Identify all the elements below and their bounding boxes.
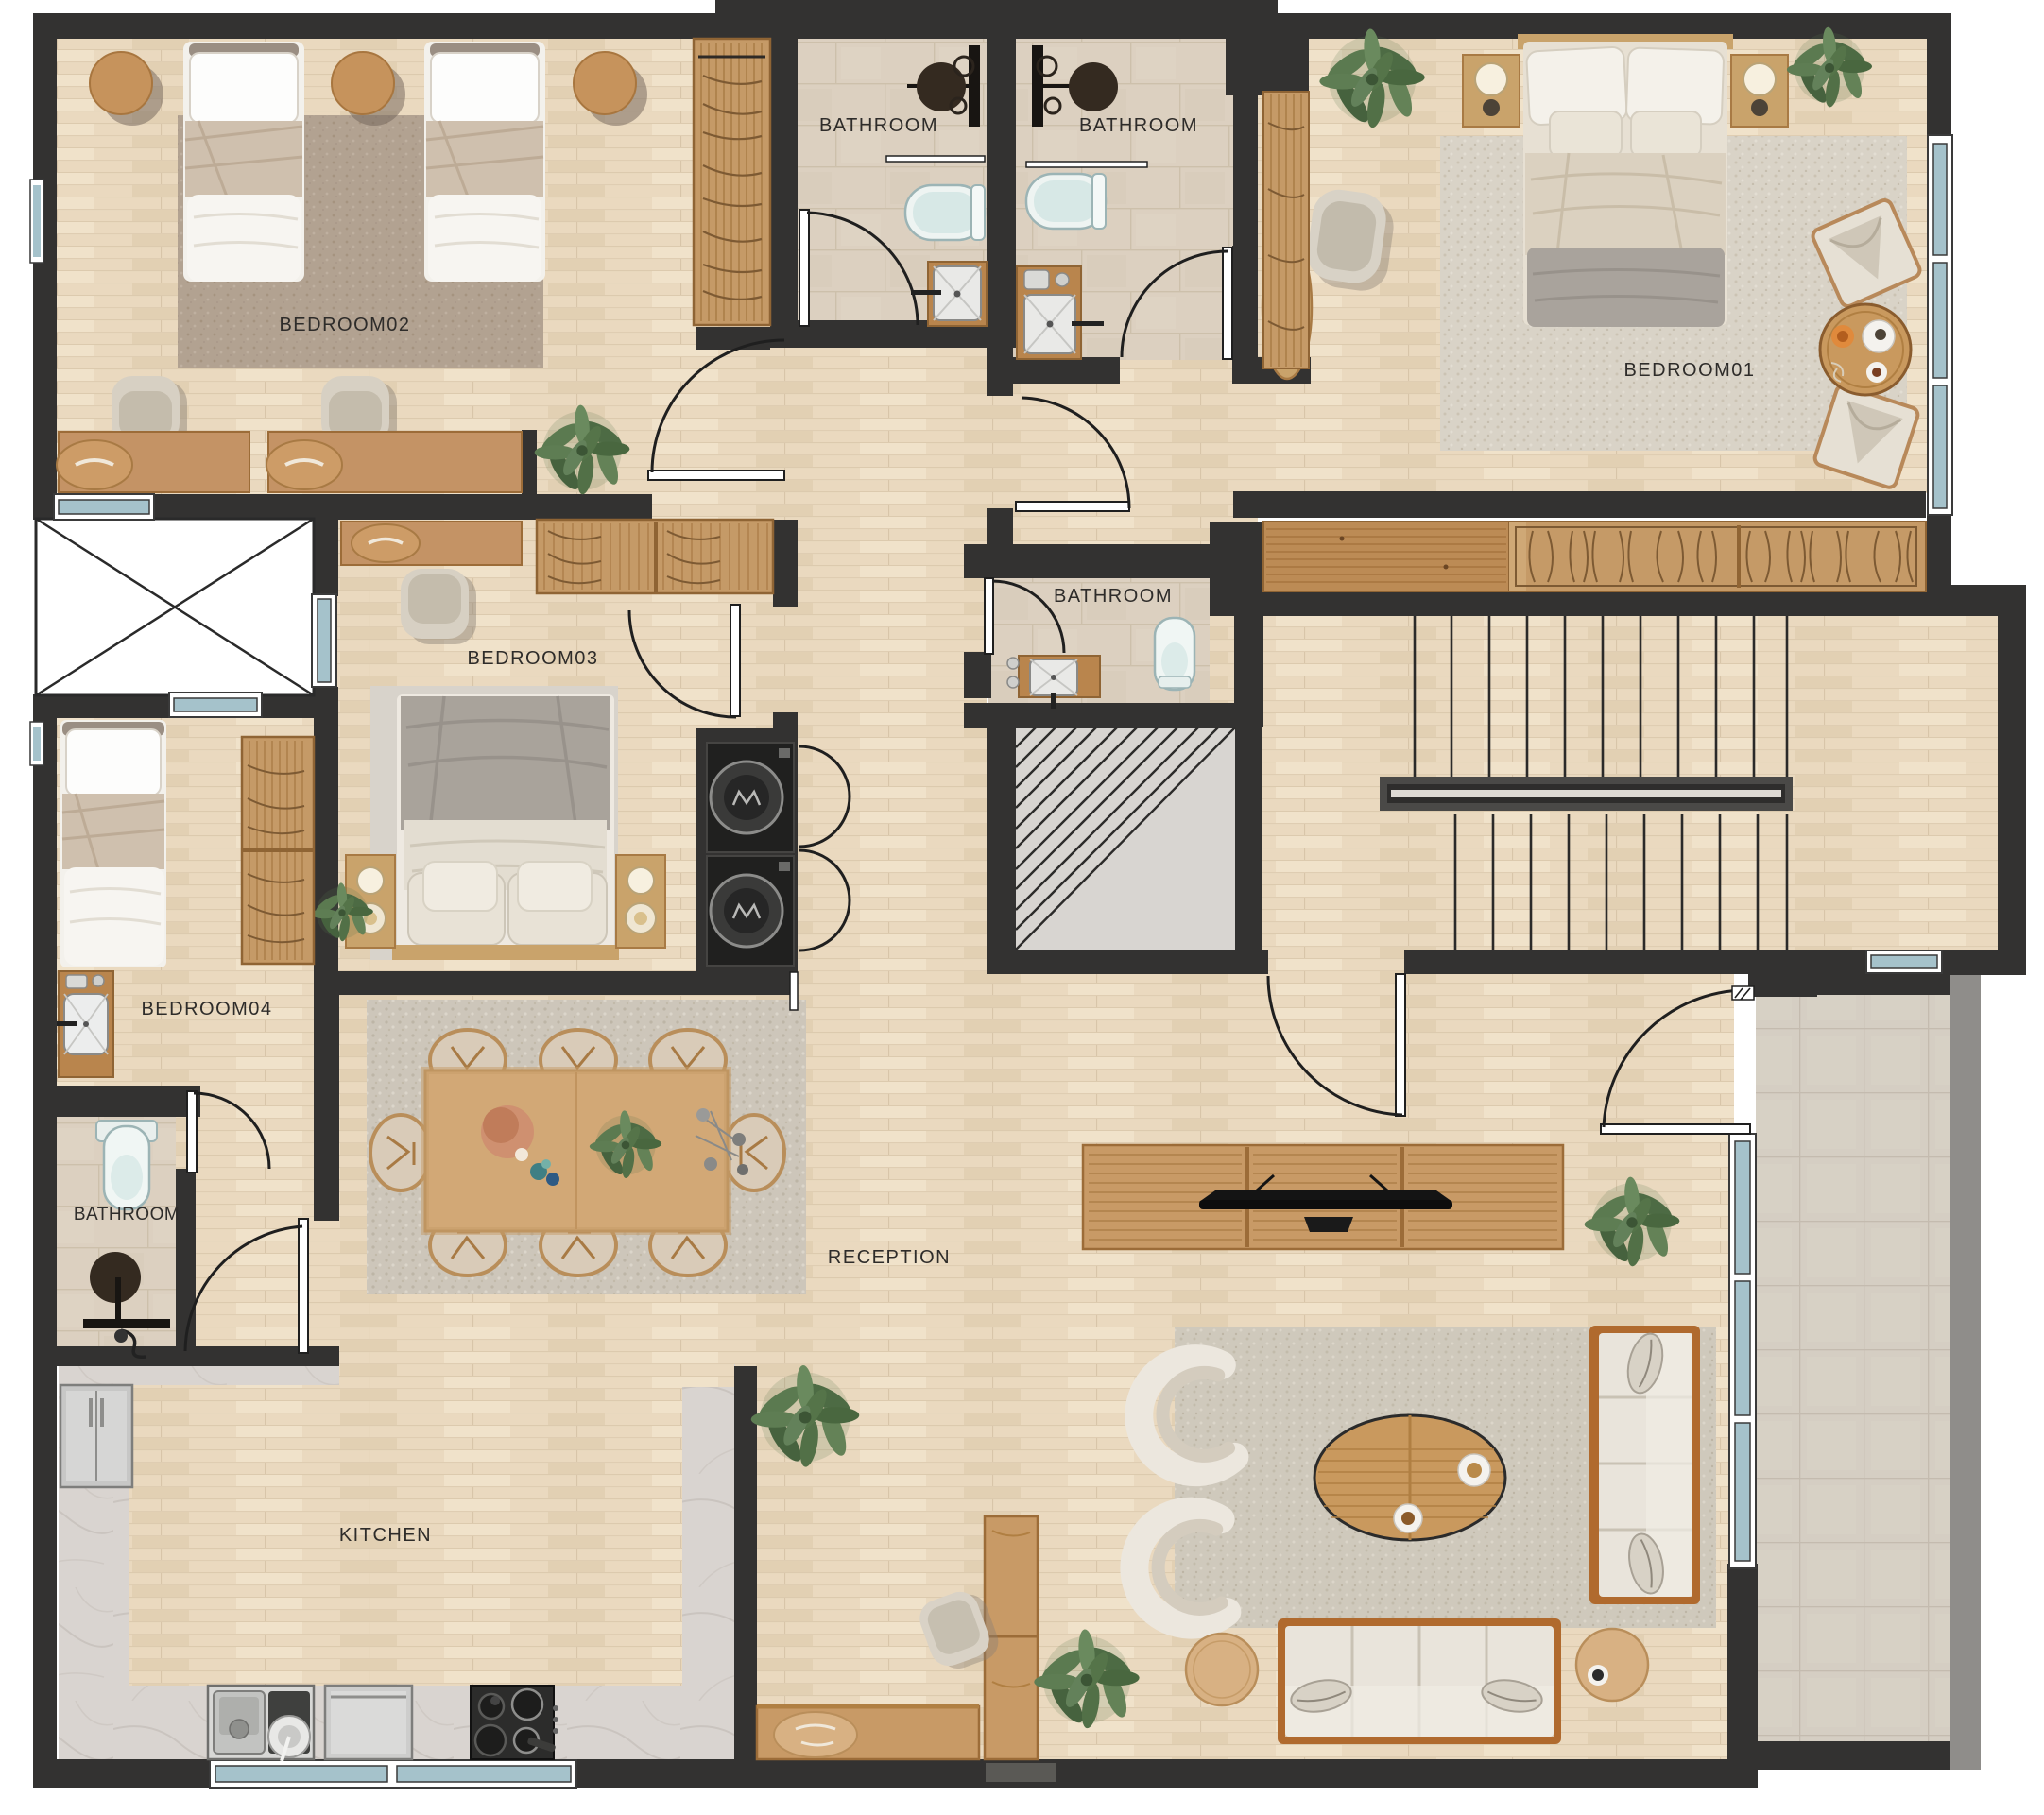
svg-text:BATHROOM: BATHROOM bbox=[74, 1205, 180, 1224]
svg-text:BATHROOM: BATHROOM bbox=[1054, 586, 1173, 607]
svg-text:BEDROOM04: BEDROOM04 bbox=[141, 999, 272, 1019]
svg-text:BATHROOM: BATHROOM bbox=[819, 115, 938, 136]
svg-text:KITCHEN: KITCHEN bbox=[339, 1525, 432, 1546]
svg-text:BEDROOM03: BEDROOM03 bbox=[467, 648, 598, 669]
svg-text:RECEPTION: RECEPTION bbox=[828, 1247, 951, 1268]
svg-text:BEDROOM02: BEDROOM02 bbox=[279, 315, 410, 335]
svg-text:BEDROOM01: BEDROOM01 bbox=[1623, 360, 1755, 381]
svg-text:BATHROOM: BATHROOM bbox=[1079, 115, 1198, 136]
